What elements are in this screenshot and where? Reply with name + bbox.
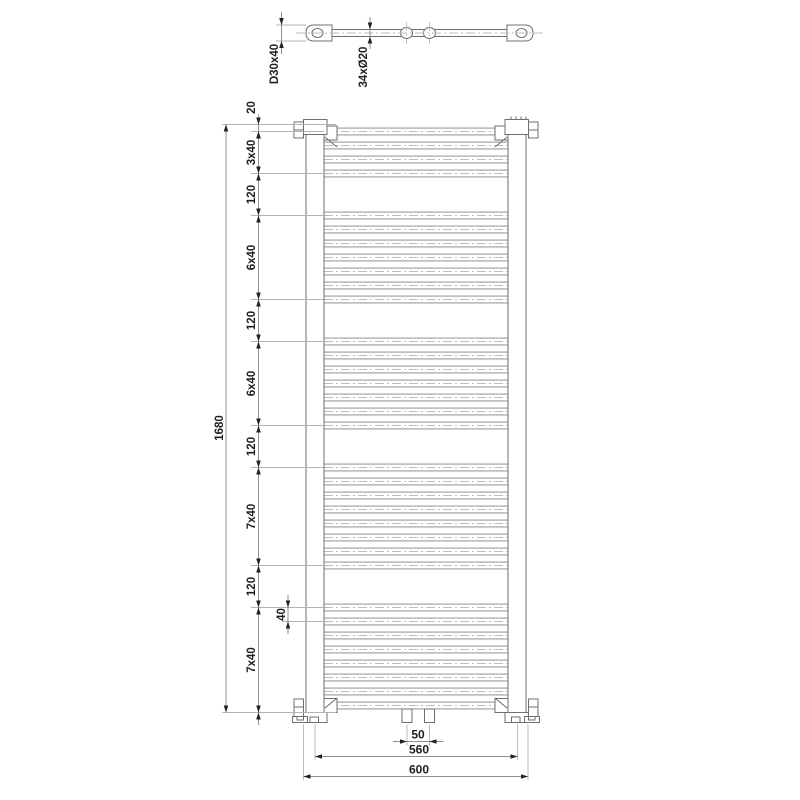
dim-label-left-chain: 120 (246, 311, 258, 330)
wall-bracket (529, 699, 539, 717)
dimension-arrow (256, 426, 261, 433)
dimension-arrow (256, 468, 261, 475)
tube (324, 422, 508, 429)
connection-stub (425, 709, 435, 723)
tube (324, 646, 508, 653)
tube (324, 618, 508, 625)
dim-label-tube-spec: 34xØ20 (358, 47, 370, 88)
right-collector (508, 125, 526, 713)
dimension-arrow (256, 461, 261, 468)
elbow-step (495, 699, 508, 713)
dim-label-left-chain: 3x40 (246, 140, 258, 166)
dimension-arrow (256, 167, 261, 174)
tube (324, 352, 508, 359)
dimension-arrow (224, 706, 229, 713)
dim-label-overall-height: 1680 (214, 415, 226, 441)
dimension-arrow (286, 601, 291, 608)
tube (324, 632, 508, 639)
dimension-arrow (256, 706, 261, 713)
wall-bracket (294, 699, 304, 717)
dimension-arrow (286, 622, 291, 629)
dimension-arrow (368, 37, 373, 44)
dim-label-bracket-profile: D30x40 (269, 44, 281, 84)
dim-label-left-chain: 120 (246, 577, 258, 596)
tube (324, 394, 508, 401)
dimension-arrow (256, 132, 261, 139)
tube (324, 156, 508, 163)
elbow-step (324, 699, 337, 713)
tube (324, 548, 508, 555)
dim-label-left-chain: 120 (246, 185, 258, 204)
dimension-arrow (256, 419, 261, 426)
tube (324, 688, 508, 695)
dim-label-left-chain: 20 (246, 101, 258, 114)
dimension-arrow (304, 774, 311, 779)
tube (324, 506, 508, 513)
tube (324, 170, 508, 177)
dimension-arrow (400, 739, 407, 744)
dimension-arrow (224, 125, 229, 132)
tube (324, 380, 508, 387)
dimension-arrow (256, 209, 261, 216)
dimension-arrow (256, 559, 261, 566)
dim-label-left-chain: 120 (246, 437, 258, 456)
tube (324, 702, 508, 709)
dimension-arrow (430, 739, 437, 744)
front-view (293, 117, 540, 723)
dimension-arrow (256, 335, 261, 342)
tube (324, 408, 508, 415)
dimension-arrow (256, 293, 261, 300)
tube (324, 674, 508, 681)
dimension-arrow (256, 713, 261, 720)
dimension-arrow (315, 754, 322, 759)
dimension-arrow (256, 608, 261, 615)
top-cap-right (505, 120, 529, 135)
dim-label-connection-spacing: 50 (411, 728, 425, 742)
dimension-arrow (256, 300, 261, 307)
dim-label-left-chain: 6x40 (246, 371, 258, 397)
tube (324, 604, 508, 611)
dimension-arrow (279, 18, 284, 25)
drawing-canvas: D30x40 34xØ20 1680 40 50 560 600 203x401… (0, 0, 800, 800)
tube (324, 366, 508, 373)
tube (324, 268, 508, 275)
tube (324, 534, 508, 541)
dim-label-collector-spacing: 560 (409, 743, 429, 757)
tube (324, 338, 508, 345)
top-view (296, 22, 543, 44)
dim-label-left-chain: 7x40 (246, 647, 258, 673)
dimension-arrow (256, 118, 261, 125)
tube (324, 128, 508, 135)
tube (324, 464, 508, 471)
left-collector (306, 125, 324, 713)
tube (324, 478, 508, 485)
tube (324, 282, 508, 289)
tube (324, 562, 508, 569)
dimension-arrow (521, 774, 528, 779)
dim-label-left-chain: 20 (249, 0, 262, 3)
dim-label-left-chain: 7x40 (246, 504, 258, 530)
dim-label-left-chain: 6x40 (246, 245, 258, 271)
dimension-arrow (256, 174, 261, 181)
dimension-arrow (368, 23, 373, 30)
connection-stub (402, 709, 412, 723)
tube (324, 492, 508, 499)
tube (324, 226, 508, 233)
tube (324, 254, 508, 261)
tube (324, 240, 508, 247)
dimension-arrow (256, 566, 261, 573)
tube (324, 296, 508, 303)
dim-label-tube-pitch: 40 (276, 608, 288, 621)
dimension-arrow (256, 601, 261, 608)
tube (324, 212, 508, 219)
dimension-arrow (256, 342, 261, 349)
tube (324, 520, 508, 527)
dimension-arrow (511, 754, 518, 759)
dimension-arrow (256, 216, 261, 223)
top-cap-left (304, 120, 328, 135)
dim-label-overall-width: 600 (409, 763, 429, 777)
tube (324, 660, 508, 667)
tube (324, 142, 508, 149)
radiator-technical-drawing: D30x40 34xØ20 1680 40 50 560 600 203x401… (0, 0, 800, 800)
